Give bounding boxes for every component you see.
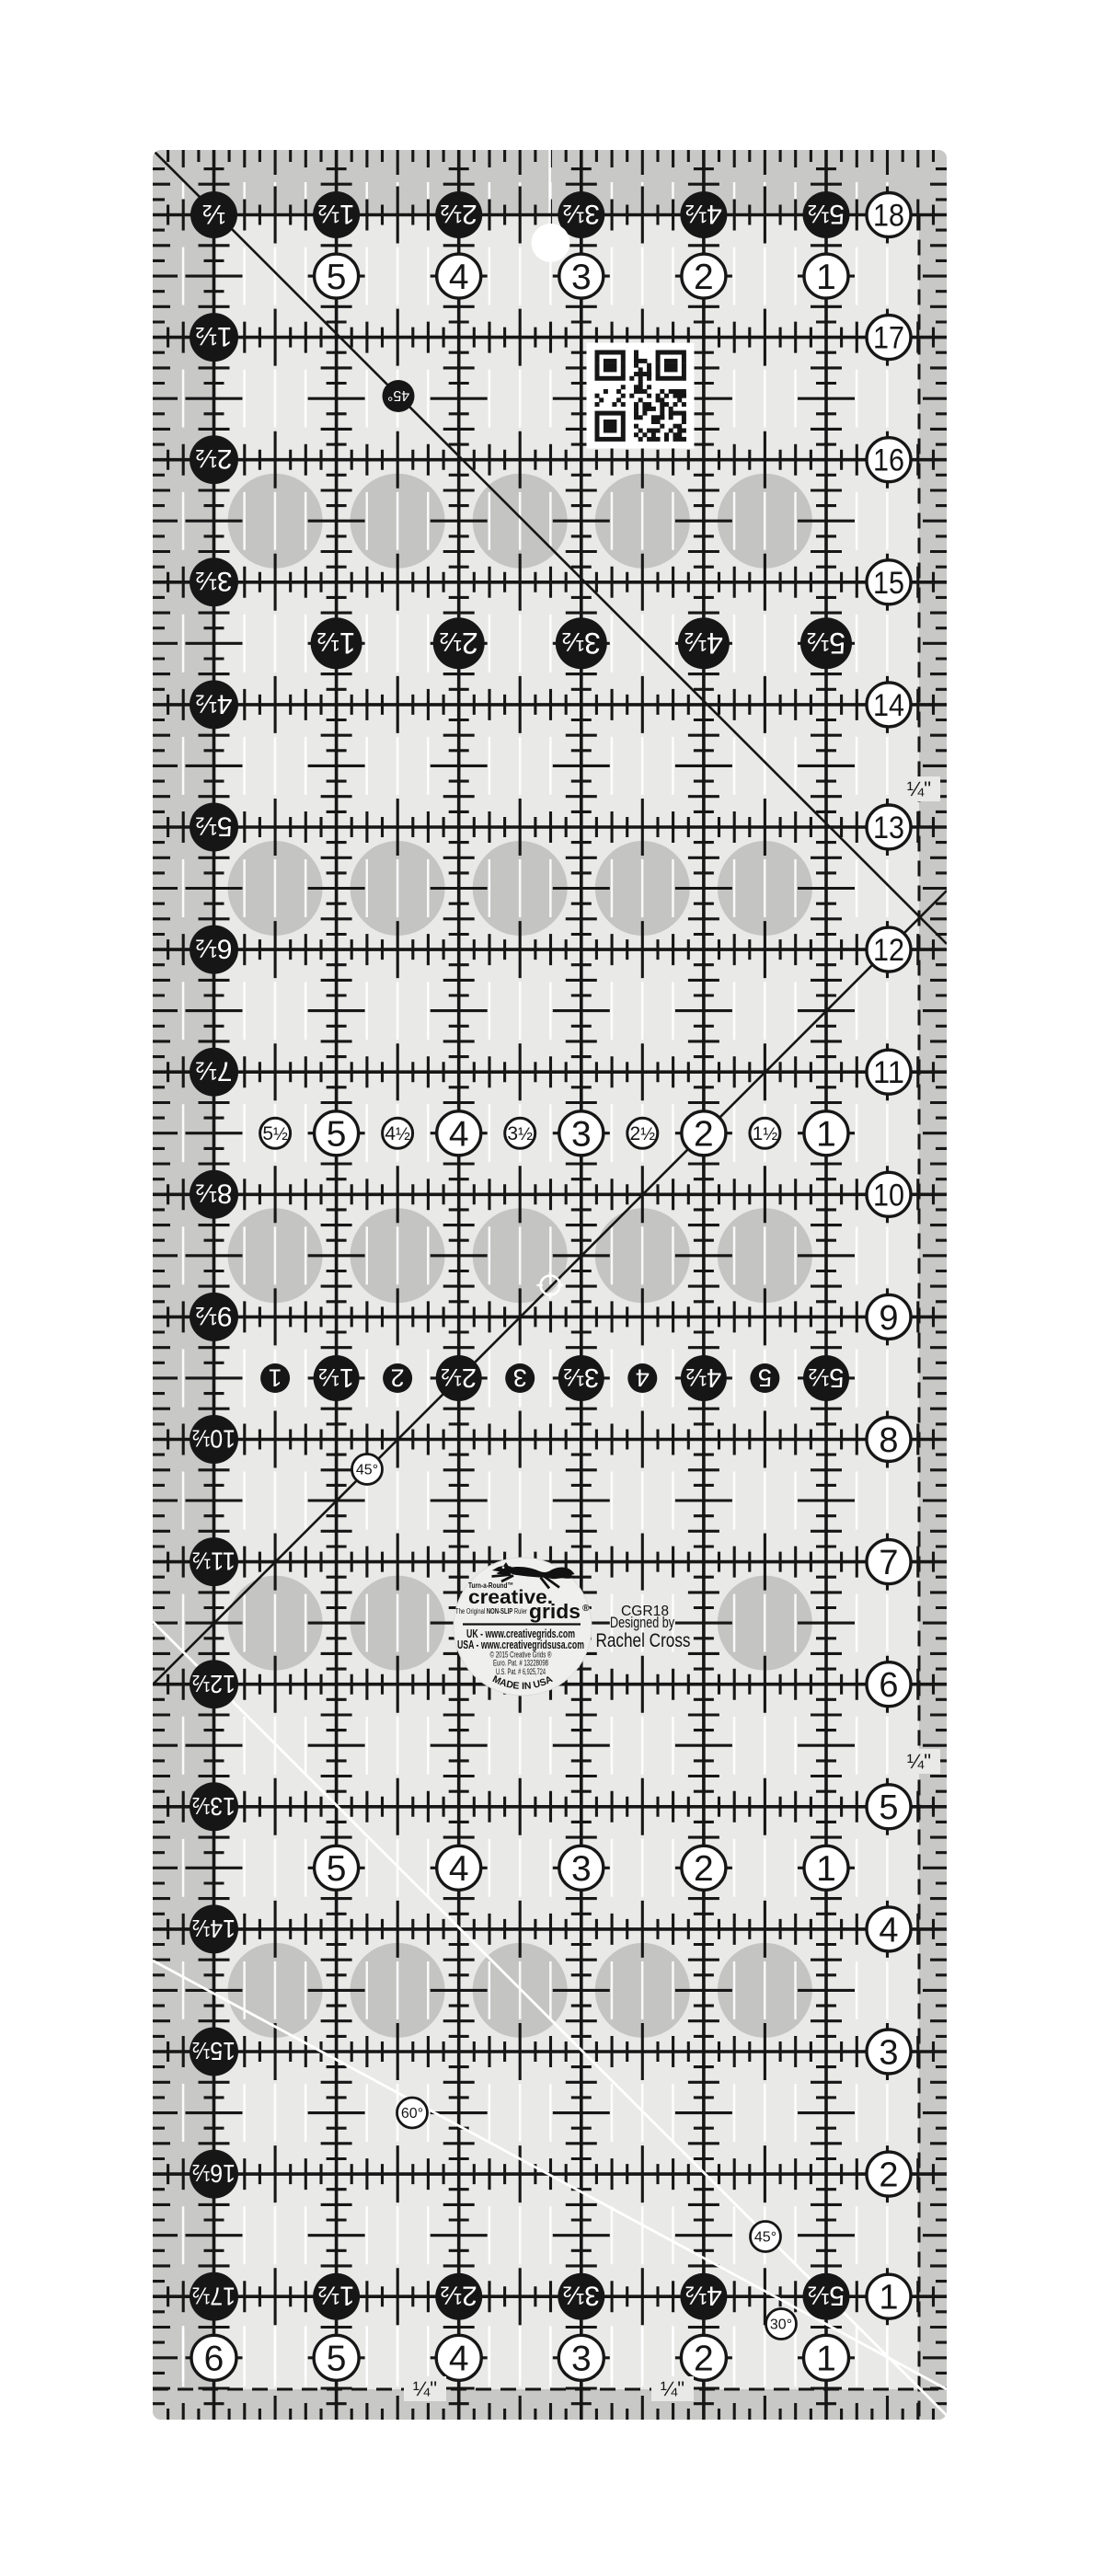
svg-text:2½: 2½ — [440, 627, 478, 660]
svg-text:14½: 14½ — [192, 1915, 236, 1943]
svg-text:1½: 1½ — [753, 1123, 778, 1144]
svg-text:4: 4 — [636, 1364, 650, 1392]
svg-text:5: 5 — [758, 1364, 772, 1392]
svg-text:3: 3 — [879, 2033, 898, 2072]
svg-text:45°: 45° — [754, 2230, 776, 2246]
svg-text:1: 1 — [816, 2340, 836, 2379]
svg-text:3½: 3½ — [195, 566, 232, 596]
svg-text:7: 7 — [879, 1544, 898, 1582]
svg-text:1½: 1½ — [317, 627, 356, 660]
svg-text:18: 18 — [873, 199, 904, 234]
svg-text:2: 2 — [879, 2156, 898, 2195]
svg-text:4: 4 — [879, 1911, 898, 1949]
svg-text:60°: 60° — [401, 2106, 423, 2122]
svg-text:5½: 5½ — [807, 627, 845, 660]
svg-text:8: 8 — [879, 1421, 898, 1460]
svg-text:®: ® — [582, 1604, 590, 1614]
svg-text:13½: 13½ — [192, 1792, 236, 1821]
svg-text:16: 16 — [873, 443, 904, 478]
svg-text:4½: 4½ — [195, 688, 232, 719]
svg-text:¼": ¼" — [413, 2377, 437, 2400]
svg-text:grids: grids — [529, 1600, 581, 1623]
svg-text:9½: 9½ — [195, 1301, 232, 1331]
svg-text:2: 2 — [391, 1364, 405, 1392]
svg-text:3½: 3½ — [563, 1363, 599, 1392]
svg-text:2: 2 — [694, 1115, 714, 1155]
svg-text:3: 3 — [571, 258, 592, 297]
svg-text:5½: 5½ — [808, 199, 845, 229]
svg-text:17: 17 — [873, 321, 904, 356]
svg-text:4: 4 — [449, 258, 469, 297]
svg-text:3½: 3½ — [563, 2281, 600, 2311]
svg-text:1½: 1½ — [318, 199, 355, 229]
svg-text:10: 10 — [873, 1178, 904, 1213]
svg-text:3½: 3½ — [563, 199, 600, 229]
svg-text:6: 6 — [204, 2340, 224, 2379]
svg-text:11½: 11½ — [192, 1547, 236, 1576]
svg-text:2½: 2½ — [441, 2281, 477, 2311]
svg-text:4½: 4½ — [686, 1363, 722, 1392]
svg-text:2½: 2½ — [630, 1123, 656, 1144]
svg-text:1½: 1½ — [195, 321, 232, 351]
svg-text:2½: 2½ — [195, 443, 232, 474]
svg-text:8½: 8½ — [195, 1179, 232, 1209]
svg-text:Euro. Pat. # 13228098: Euro. Pat. # 13228098 — [493, 1659, 548, 1668]
svg-text:12: 12 — [873, 933, 904, 968]
svg-text:13: 13 — [873, 811, 904, 845]
svg-text:5½: 5½ — [809, 1363, 845, 1392]
svg-text:3: 3 — [571, 1849, 592, 1889]
svg-text:5½: 5½ — [195, 811, 232, 841]
svg-text:5: 5 — [327, 2340, 347, 2379]
svg-text:16½: 16½ — [192, 2159, 236, 2188]
svg-text:5½: 5½ — [262, 1123, 288, 1144]
svg-text:The Original NON-SLIP Ruler: The Original NON-SLIP Ruler — [455, 1607, 527, 1616]
svg-text:Rachel Cross: Rachel Cross — [596, 1629, 691, 1651]
svg-text:30°: 30° — [770, 2317, 792, 2333]
svg-text:4½: 4½ — [684, 627, 723, 660]
svg-text:6: 6 — [879, 1666, 898, 1705]
svg-text:1½: 1½ — [318, 1363, 354, 1392]
svg-text:3: 3 — [513, 1364, 527, 1392]
svg-text:¼": ¼" — [907, 777, 931, 800]
svg-text:2: 2 — [694, 258, 714, 297]
svg-text:4: 4 — [449, 1849, 469, 1889]
svg-text:1: 1 — [879, 2279, 898, 2317]
svg-text:45°: 45° — [387, 387, 409, 403]
svg-text:11: 11 — [873, 1055, 904, 1090]
svg-text:4½: 4½ — [685, 2281, 722, 2311]
svg-text:3: 3 — [571, 2340, 592, 2379]
svg-text:3½: 3½ — [507, 1123, 533, 1144]
svg-text:1: 1 — [816, 1115, 836, 1155]
svg-text:6½: 6½ — [195, 934, 232, 964]
svg-text:1: 1 — [816, 1849, 836, 1889]
svg-text:3½: 3½ — [562, 627, 601, 660]
svg-text:2½: 2½ — [441, 1363, 477, 1392]
svg-text:5: 5 — [879, 1788, 898, 1827]
svg-text:15½: 15½ — [192, 2037, 236, 2065]
svg-text:15: 15 — [873, 566, 904, 601]
svg-text:7½: 7½ — [195, 1056, 232, 1087]
svg-text:4: 4 — [449, 1115, 469, 1155]
svg-text:10½: 10½ — [192, 1425, 236, 1454]
svg-text:1½: 1½ — [318, 2281, 355, 2311]
svg-text:4½: 4½ — [385, 1123, 410, 1144]
svg-text:2: 2 — [694, 1849, 714, 1889]
svg-text:½: ½ — [202, 199, 225, 229]
svg-text:12½: 12½ — [192, 1670, 236, 1698]
svg-text:5½: 5½ — [808, 2281, 845, 2311]
svg-text:¼": ¼" — [907, 1750, 931, 1773]
svg-text:1: 1 — [269, 1364, 282, 1392]
svg-text:5: 5 — [327, 1849, 347, 1889]
svg-text:4½: 4½ — [685, 199, 722, 229]
svg-text:4: 4 — [449, 2340, 469, 2379]
svg-text:2: 2 — [694, 2340, 714, 2379]
svg-text:5: 5 — [327, 258, 347, 297]
svg-text:5: 5 — [327, 1115, 347, 1155]
svg-text:17½: 17½ — [192, 2282, 236, 2310]
svg-text:2½: 2½ — [441, 199, 477, 229]
svg-text:9: 9 — [879, 1299, 898, 1338]
svg-text:45°: 45° — [356, 1463, 378, 1478]
svg-text:1: 1 — [816, 258, 836, 297]
svg-text:¼": ¼" — [661, 2377, 684, 2400]
svg-text:14: 14 — [873, 688, 904, 723]
svg-text:U.S. Pat. # 6,925,724: U.S. Pat. # 6,925,724 — [496, 1667, 546, 1676]
svg-text:3: 3 — [571, 1115, 592, 1155]
